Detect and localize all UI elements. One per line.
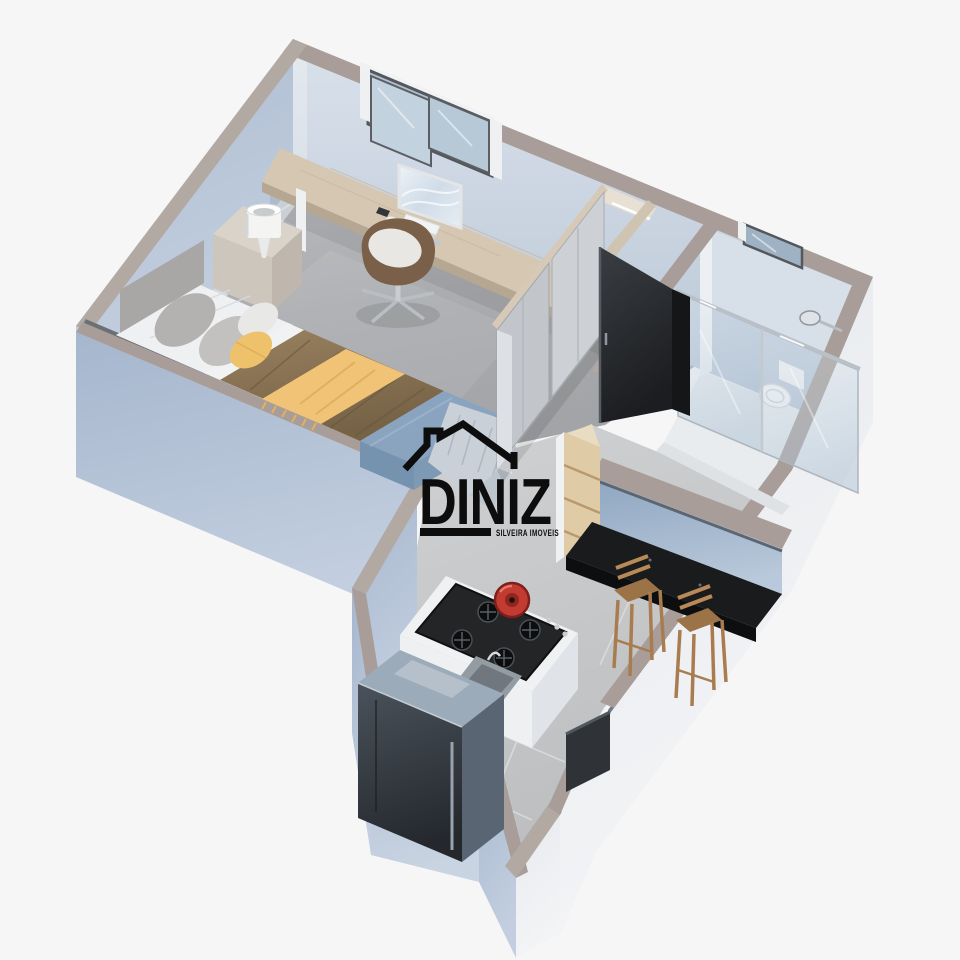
counter-speckle-1: [649, 559, 652, 562]
window-jamb-left: [360, 62, 370, 122]
floorplan-render: DINIZ SILVEIRA IMOVEIS: [0, 0, 960, 960]
logo-bar: [420, 528, 491, 536]
apartment-3d-scene: DINIZ SILVEIRA IMOVEIS: [0, 0, 960, 960]
counter-speckle-2: [699, 584, 702, 587]
window-jamb-right: [490, 118, 502, 180]
lamp-shade-inner: [253, 208, 275, 216]
door-jamb-dark: [672, 289, 690, 416]
shelf-side-white: [556, 432, 564, 563]
shower-head-disc: [800, 311, 820, 325]
pot-knob: [509, 597, 515, 603]
chair-shadow: [356, 302, 440, 328]
red-pot: [495, 583, 529, 617]
logo-tagline-text: SILVEIRA IMOVEIS: [496, 528, 559, 538]
